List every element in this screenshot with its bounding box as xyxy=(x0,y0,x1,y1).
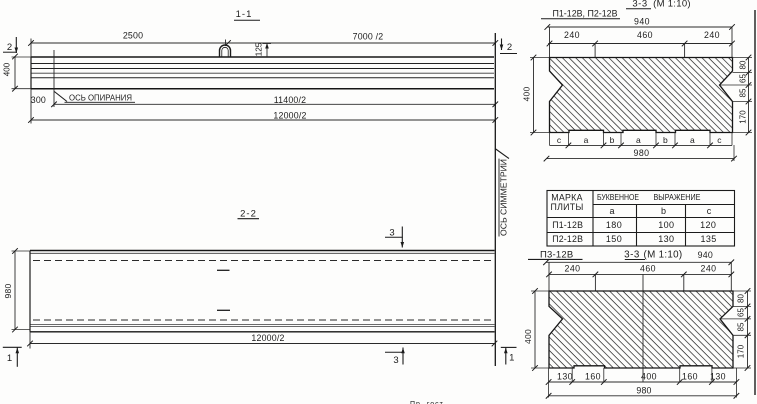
svg-text:125: 125 xyxy=(254,42,264,56)
svg-text:460: 460 xyxy=(640,264,656,274)
svg-text:135: 135 xyxy=(700,234,716,244)
svg-text:120: 120 xyxy=(700,220,716,230)
svg-text:c: c xyxy=(707,206,712,216)
svg-text:1: 1 xyxy=(7,353,12,364)
svg-text:240: 240 xyxy=(704,30,720,40)
svg-text:65: 65 xyxy=(739,74,748,83)
svg-text:980: 980 xyxy=(634,148,650,158)
svg-text:240: 240 xyxy=(564,30,580,40)
svg-text:ОСЬ ОПИРАНИЯ: ОСЬ ОПИРАНИЯ xyxy=(69,92,132,102)
svg-text:ОСЬ СИММЕТРИИ: ОСЬ СИММЕТРИИ xyxy=(499,159,509,236)
svg-text:a: a xyxy=(584,135,589,145)
svg-text:940: 940 xyxy=(698,250,713,260)
svg-text:П3-12В: П3-12В xyxy=(540,249,573,260)
svg-text:980: 980 xyxy=(3,283,13,298)
svg-text:11400/2: 11400/2 xyxy=(274,95,307,105)
svg-text:180: 180 xyxy=(606,220,622,230)
svg-text:b: b xyxy=(661,206,666,216)
svg-text:170: 170 xyxy=(737,344,746,358)
svg-text:3-3: 3-3 xyxy=(632,0,647,10)
svg-text:2: 2 xyxy=(507,42,512,53)
svg-text:БУКВЕННОЕ: БУКВЕННОЕ xyxy=(597,193,639,202)
svg-text:b: b xyxy=(663,135,668,145)
svg-text:(М 1:10): (М 1:10) xyxy=(653,0,691,10)
svg-text:3: 3 xyxy=(393,355,398,366)
svg-text:b: b xyxy=(610,135,615,145)
svg-text:400: 400 xyxy=(3,62,12,76)
svg-text:160: 160 xyxy=(682,372,698,382)
svg-text:П1-12В: П1-12В xyxy=(552,220,583,230)
svg-text:П1-12В, П2-12В: П1-12В, П2-12В xyxy=(553,9,618,20)
svg-text:12000/2: 12000/2 xyxy=(273,111,306,121)
svg-text:(М 1:10): (М 1:10) xyxy=(644,250,683,261)
svg-text:2-2: 2-2 xyxy=(240,209,257,220)
svg-text:400: 400 xyxy=(523,329,533,344)
svg-text:80: 80 xyxy=(739,60,748,69)
svg-text:460: 460 xyxy=(637,30,653,40)
svg-text:160: 160 xyxy=(585,372,601,382)
svg-text:100: 100 xyxy=(658,220,674,230)
svg-text:80: 80 xyxy=(737,294,746,303)
svg-text:2: 2 xyxy=(7,42,12,53)
svg-text:a: a xyxy=(690,135,695,145)
svg-text:3-3: 3-3 xyxy=(624,250,640,261)
svg-text:65: 65 xyxy=(737,308,746,317)
svg-text:400: 400 xyxy=(521,86,531,101)
svg-text:170: 170 xyxy=(739,110,748,124)
svg-text:85: 85 xyxy=(737,322,746,331)
svg-text:980: 980 xyxy=(636,385,651,395)
svg-text:1: 1 xyxy=(509,353,514,364)
svg-text:300: 300 xyxy=(31,95,46,105)
svg-text:П2-12В: П2-12В xyxy=(552,234,583,244)
svg-text:ВЫРАЖЕНИЕ: ВЫРАЖЕНИЕ xyxy=(654,193,701,202)
svg-text:130: 130 xyxy=(658,234,674,244)
svg-text:a: a xyxy=(636,135,641,145)
svg-text:12000/2: 12000/2 xyxy=(251,333,284,343)
svg-text:400: 400 xyxy=(641,372,657,382)
svg-text:85: 85 xyxy=(739,88,748,97)
svg-text:a: a xyxy=(609,206,614,216)
svg-text:МАРКА: МАРКА xyxy=(551,193,583,203)
svg-text:ПЛИТЫ: ПЛИТЫ xyxy=(550,202,583,212)
svg-text:c: c xyxy=(717,135,722,145)
svg-text:130: 130 xyxy=(557,372,573,382)
svg-text:150: 150 xyxy=(606,234,622,244)
svg-text:940: 940 xyxy=(634,17,650,27)
svg-text:1-1: 1-1 xyxy=(236,9,253,20)
svg-text:240: 240 xyxy=(565,264,581,274)
svg-text:7000 /2: 7000 /2 xyxy=(353,32,384,42)
svg-text:240: 240 xyxy=(701,264,717,274)
svg-text:2500: 2500 xyxy=(123,31,143,41)
svg-text:130: 130 xyxy=(710,372,726,382)
